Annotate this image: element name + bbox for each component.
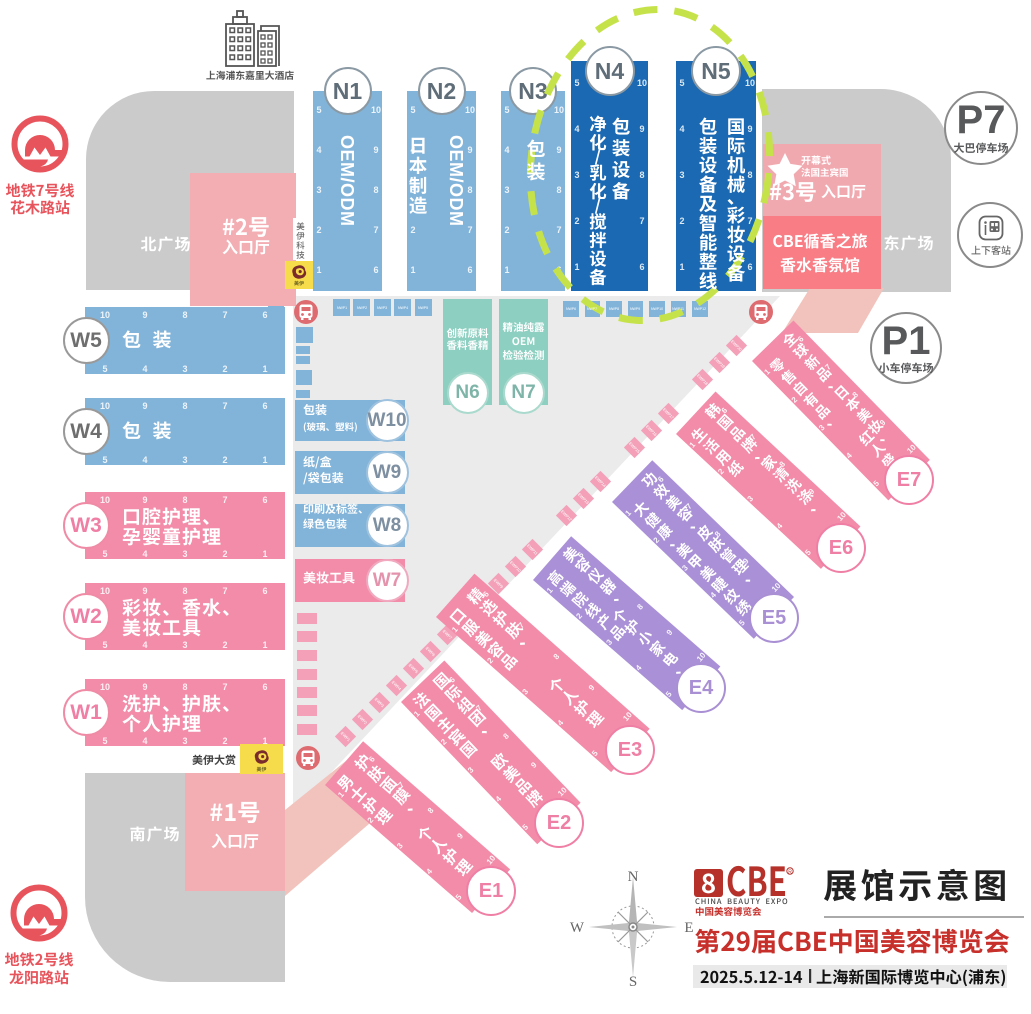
svg-text:R: R (788, 870, 792, 876)
svg-text:E: E (684, 920, 693, 936)
svg-text:W: W (570, 920, 585, 936)
svg-text:N: N (628, 869, 639, 885)
svg-text:S: S (629, 974, 637, 990)
